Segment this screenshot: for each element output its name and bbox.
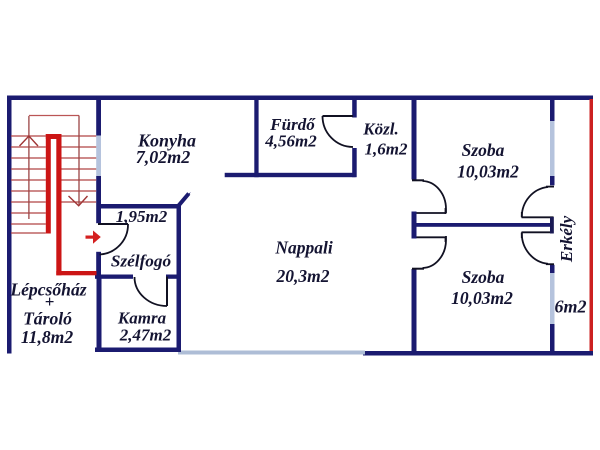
svg-text:Nappali: Nappali (274, 238, 333, 258)
svg-text:1,95m2: 1,95m2 (116, 207, 168, 226)
svg-text:Szoba: Szoba (462, 267, 505, 287)
svg-text:7,02m2: 7,02m2 (136, 147, 191, 167)
svg-text:1,6m2: 1,6m2 (365, 140, 408, 159)
svg-text:Erkély: Erkély (557, 215, 576, 263)
svg-text:10,03m2: 10,03m2 (451, 288, 513, 308)
svg-text:6m2: 6m2 (554, 297, 586, 317)
svg-text:11,8m2: 11,8m2 (21, 327, 74, 347)
svg-text:Tároló: Tároló (23, 309, 72, 329)
svg-text:10,03m2: 10,03m2 (457, 162, 519, 182)
svg-text:2,47m2: 2,47m2 (119, 326, 172, 345)
svg-text:Közl.: Közl. (362, 120, 398, 139)
svg-text:20,3m2: 20,3m2 (276, 266, 330, 286)
svg-text:4,56m2: 4,56m2 (264, 131, 317, 150)
svg-text:Szélfogó: Szélfogó (111, 252, 172, 271)
svg-text:Szoba: Szoba (462, 140, 505, 160)
